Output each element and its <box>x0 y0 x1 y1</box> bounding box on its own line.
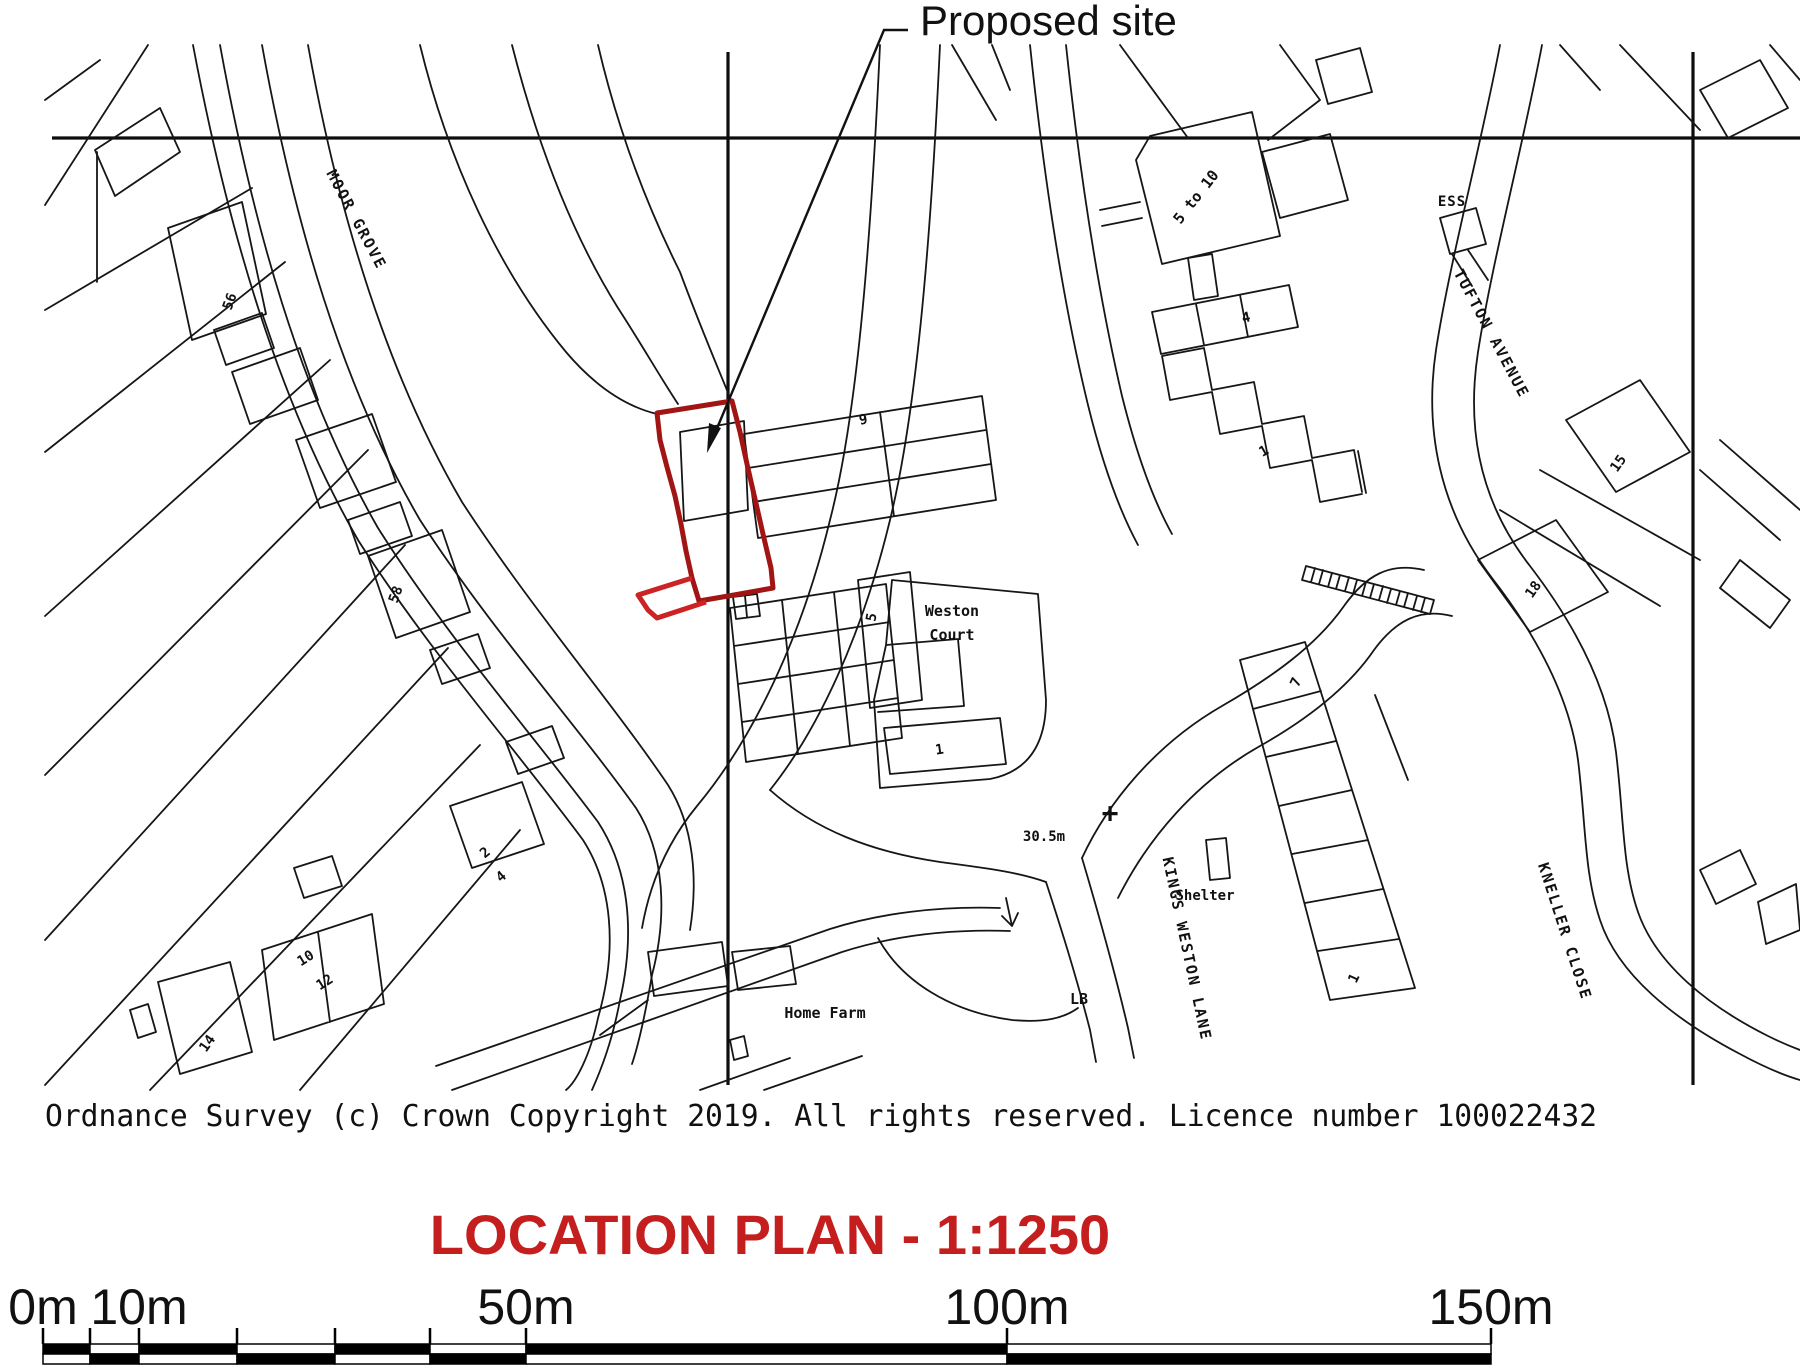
weston-court-1-label: Weston <box>925 602 979 620</box>
house-15-label: 15 <box>1607 452 1630 475</box>
scale-segment <box>90 1354 139 1364</box>
ess-substation-label: ESS <box>1438 194 1466 210</box>
scale-segment <box>335 1344 430 1354</box>
scale-segment <box>237 1354 335 1364</box>
house-4-terrace-label: 4 <box>1240 309 1252 326</box>
scale-segment <box>335 1354 430 1364</box>
scale-label-0m: 0m <box>8 1279 77 1335</box>
house-5-weston-label: 5 <box>863 612 880 623</box>
house-4-left-label: 4 <box>493 868 510 886</box>
scale-segment <box>139 1354 237 1364</box>
scale-segment <box>430 1354 526 1364</box>
scale-label-100m: 100m <box>944 1279 1069 1335</box>
arrow-head-icon <box>707 423 721 453</box>
map-grid-lines <box>52 52 1800 1085</box>
location-plan-page: Proposed siteMOOR GROVE56582410121495Wes… <box>0 0 1800 1371</box>
scale-segment <box>43 1354 90 1364</box>
spot-height-label: 30.5m <box>1023 829 1065 845</box>
map-linework-right <box>952 45 1800 1000</box>
scale-label-150m: 150m <box>1428 1279 1553 1335</box>
shelter-label: Shelter <box>1175 888 1234 904</box>
scale-label-50m: 50m <box>477 1279 574 1335</box>
scale-segment <box>430 1344 526 1354</box>
lb-letterbox-label: LB <box>1070 990 1088 1008</box>
map-linework-plots <box>45 45 564 1090</box>
house-10-label: 10 <box>294 947 317 970</box>
scale-segment <box>526 1354 1007 1364</box>
street-kneller-close-label: KNELLER CLOSE <box>1534 860 1595 1002</box>
copyright-text: Ordnance Survey (c) Crown Copyright 2019… <box>45 1099 1597 1134</box>
house-5-to-10-label: 5 to 10 <box>1170 166 1223 227</box>
house-56-label: 56 <box>220 291 241 312</box>
scale-label-10m: 10m <box>90 1279 187 1335</box>
street-tufton-avenue-label: TUFTON AVENUE <box>1450 266 1533 401</box>
scale-segment <box>90 1344 139 1354</box>
street-kings-weston-lane-label: KINGS WESTON LANE <box>1159 855 1216 1042</box>
map-labels: Proposed siteMOOR GROVE56582410121495Wes… <box>196 0 1630 1055</box>
home-farm-label: Home Farm <box>784 1004 865 1022</box>
scale-segment <box>1007 1354 1491 1364</box>
scale-segment <box>1007 1344 1491 1354</box>
scale-segment <box>237 1344 335 1354</box>
house-2-label: 2 <box>477 844 494 862</box>
house-1-weston-label: 1 <box>934 742 945 759</box>
house-12-label: 12 <box>313 971 336 994</box>
scale-segment <box>43 1344 90 1354</box>
location-plan-title: LOCATION PLAN - 1:1250 <box>430 1203 1110 1266</box>
location-plan-map: Proposed siteMOOR GROVE56582410121495Wes… <box>0 0 1800 1371</box>
scale-segment <box>526 1344 1007 1354</box>
proposed-site-label: Proposed site <box>920 0 1177 44</box>
house-1-terrace-label: 1 <box>1256 442 1271 460</box>
proposed-site-outline <box>638 401 773 618</box>
house-14-label: 14 <box>196 1032 219 1055</box>
scale-bar: 0m10m50m100m150m <box>8 1279 1553 1364</box>
benchmark-cross-label: + <box>1102 796 1119 829</box>
street-moor-grove-label: MOOR GROVE <box>323 167 391 273</box>
house-1-kwl-label: 1 <box>1345 971 1363 985</box>
scale-segment <box>139 1344 237 1354</box>
house-7-label: 7 <box>1287 675 1305 689</box>
weston-court-2-label: Court <box>929 626 974 644</box>
